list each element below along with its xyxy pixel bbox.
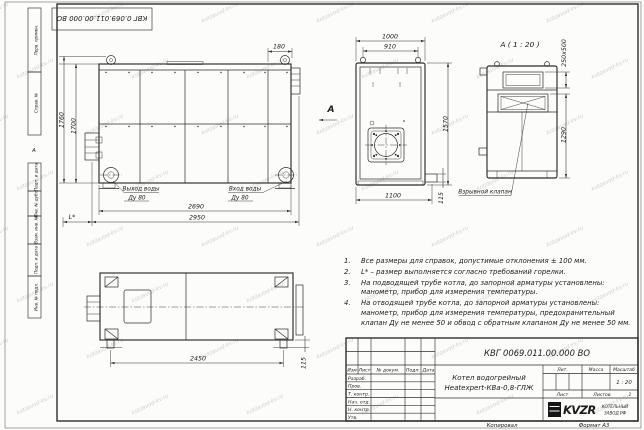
dim-side-1760: 1760 [59,112,66,128]
tb-product-name-1: Котел водогрейный [452,374,526,382]
dim-front-910: 910 [384,44,396,51]
note-text: На подводящей трубе котла, до запорной а… [361,279,637,299]
tb-col-data: Дата [422,368,435,374]
dim-detail-250x500: 250х500 [561,39,568,67]
tb-row-tkontr: Т. контр. [348,392,369,398]
tb-sheet-label: Лист [556,392,569,398]
plan-view: 2450 115 [84,273,310,369]
side-view: 1760 1700 180 2690 2950 L* А Выход воды [59,44,338,228]
note-number: 4. [344,299,361,328]
tb-mass-label: Масса [589,367,604,373]
tb-col-docnum: № докум. [376,368,400,374]
front-view: 1000 910 1570 1100 115 [356,34,452,205]
top-designation-stamp: КВГ 0.069.011.00.000 ВО [52,8,152,30]
dim-front-115: 115 [438,192,445,204]
dim-side-l-star: L* [69,214,76,221]
copied-label: Копировал [487,423,518,429]
tb-row-prov: Пров. [348,384,361,390]
dim-front-1570: 1570 [443,116,450,132]
frame-label-podp-data-1: Подп. и дата [34,163,39,191]
note-number: 3. [344,279,361,299]
format-label: Формат А3 [579,423,610,429]
frame-zone-marker: А [31,148,36,154]
note-item-4: 4. На отводящей трубе котла, до запорной… [344,299,637,328]
note-text: На отводящей трубе котла, до запорной ар… [361,299,637,328]
dim-plan-2450: 2450 [190,356,206,363]
drawing-sheet: kotzavod-kv.rukotzavod-kv.rukotzavod-kv.… [0,0,644,430]
explosion-valve-label: Взрывной клапан [458,190,512,196]
note-item-2: 2. L* – размер выполняется согласно треб… [344,268,637,278]
tb-scale-label: Масштаб [613,367,635,373]
company-name-1: КОТЕЛЬНЫЙ [602,404,629,409]
detail-a-title: А ( 1 : 20 ) [499,40,539,49]
tb-row-nachotd: Нач. отд. [348,399,370,405]
frame-label-podp-data-2: Подп. и дата [34,246,39,274]
note-item-1: 1. Все размеры для справок, допустимые о… [344,257,637,267]
water-inlet-label: Вход воды [229,187,262,193]
note-text: Все размеры для справок, допустимые откл… [361,257,637,267]
water-outlet-dn: Ду 80 [127,196,145,202]
company-logo-text: KVZR [563,403,596,417]
dim-detail-1290: 1290 [561,127,568,143]
dim-front-1100: 1100 [385,193,401,200]
tb-col-podp: Подп. [406,368,420,374]
tb-col-izm: Изм [347,368,357,374]
tb-row-utv: Утв. [348,415,358,421]
side-bolt-dots [105,72,287,127]
tb-lit-label: Лит. [556,367,568,373]
detail-a-view: А ( 1 : 20 ) 250х500 [458,39,570,195]
note-number: 1. [344,257,361,267]
tb-sheets-value: 1 [629,392,632,398]
water-inlet-dn: Ду 80 [230,196,248,202]
frame-label-sprav: Справ. № [34,92,39,113]
note-item-3: 3. На подводящей трубе котла, до запорно… [344,279,637,299]
tb-designation: КВГ 0069.011.00.000 ВО [484,348,590,358]
frame-label-perv-primen: Перв. примен. [34,25,39,56]
tb-col-list: Лист [358,368,371,374]
note-number: 2. [344,268,361,278]
stamp-designation-text: КВГ 0.069.011.00.000 ВО [56,14,147,22]
section-arrow-label: А [327,105,335,115]
lifting-lugs [105,277,288,339]
title-block: КВГ 0069.011.00.000 ВО Изм Лист № докум.… [346,338,638,421]
tb-product-name-2: Heatexpert-КВа-0,8-ГЛЖ [445,384,534,392]
dim-front-1000: 1000 [382,34,398,41]
company-logo-emblem [548,402,561,417]
tb-scale-value: 1 : 20 [616,380,632,386]
water-outlet-label: Выход воды [123,187,160,193]
dim-side-2950: 2950 [189,215,205,222]
tb-sheets-label: Листов [592,392,610,398]
tb-row-nkontr: Н. контр. [348,407,370,413]
drawing-linework: Перв. примен. Справ. № Подп. и дата Инв.… [0,0,644,430]
dim-side-180: 180 [273,44,285,51]
notes-list: 1. Все размеры для справок, допустимые о… [344,257,637,330]
note-text: L* – размер выполняется согласно требова… [361,268,637,278]
dim-side-2690: 2690 [188,204,204,211]
frame-label-inv-podl: Инв. № подл. [34,283,39,311]
dim-side-1700: 1700 [71,118,78,134]
dim-plan-115: 115 [301,357,308,369]
tb-row-razrab: Разраб. [348,376,366,382]
frame-label-vzam-inv: Взам. инв. № [34,215,39,244]
frame-label-inv-dubl: Инв. № дубл. [34,189,39,217]
front-bolt-ticks [370,68,407,87]
company-name-2: ЗАВОД РФ [604,411,626,416]
